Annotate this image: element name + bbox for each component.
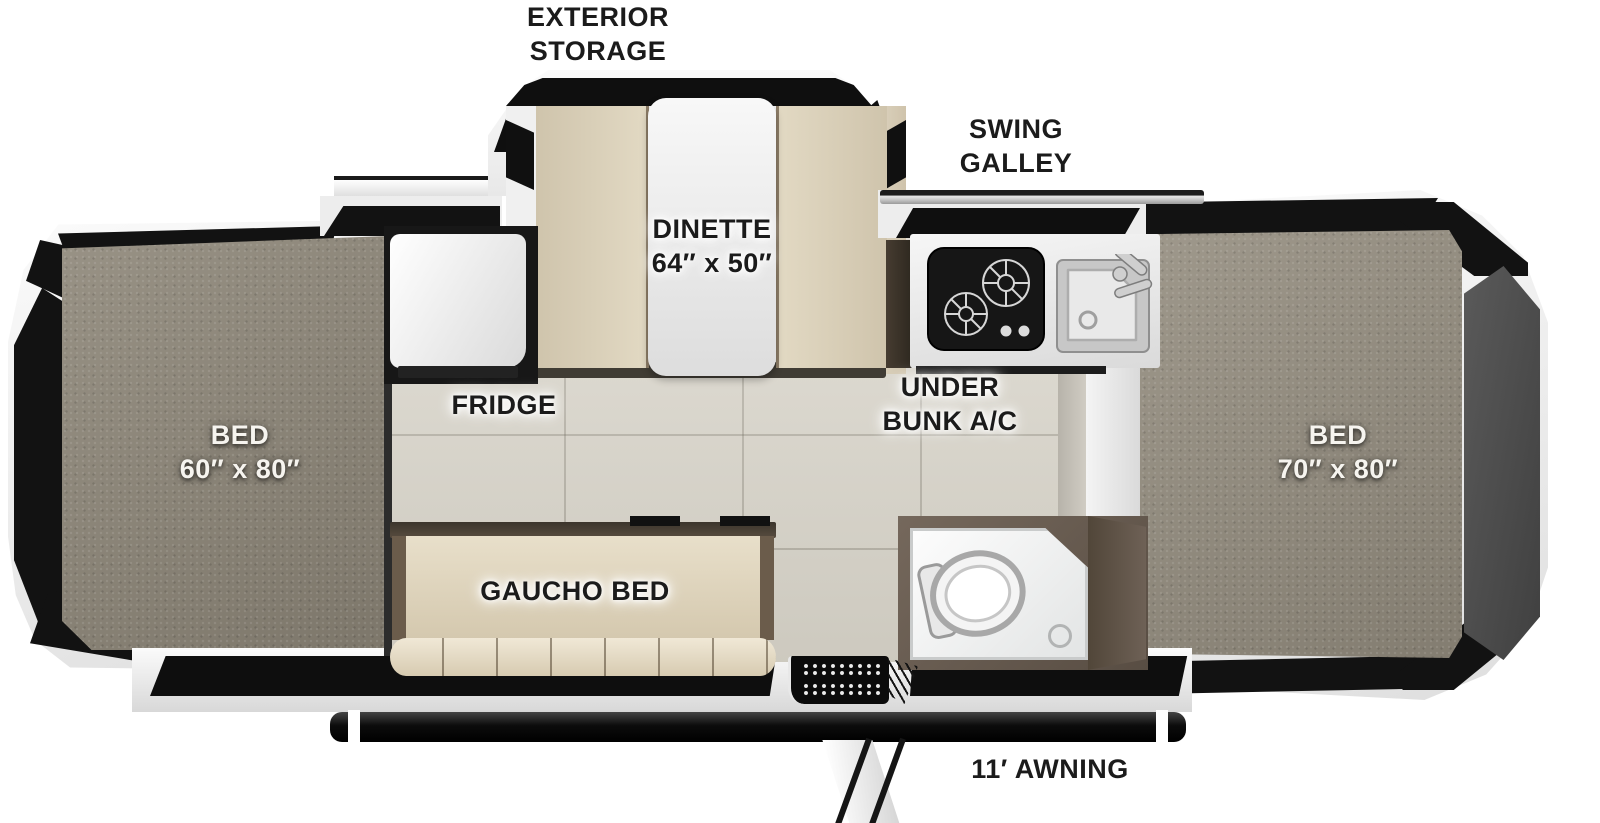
- front-storage-tray: [334, 176, 502, 198]
- bed-right-label: BED 70″ x 80″: [1198, 418, 1478, 486]
- awning-text: 11′ AWNING: [910, 752, 1190, 786]
- bed-right-size: 70″ x 80″: [1198, 452, 1478, 486]
- swing-galley-line1: SWING: [876, 112, 1156, 146]
- gaucho-bed-label: GAUCHO BED: [435, 574, 715, 608]
- entry-step-mat: [788, 656, 889, 704]
- gaucho-bed-text: GAUCHO BED: [435, 574, 715, 608]
- bed-left-size: 60″ x 80″: [100, 452, 380, 486]
- awning-rail-bracket-right: [1156, 710, 1168, 744]
- bath-side-panel: [1088, 516, 1146, 670]
- toilet-icon: [914, 540, 1028, 650]
- entry-mat-dots-row2: [803, 683, 881, 696]
- gaucho-hinge-left: [630, 516, 680, 526]
- under-bunk-ac-line1: UNDER: [810, 370, 1090, 404]
- exterior-storage-line1: EXTERIOR: [458, 0, 738, 34]
- left-bed-accent-left: [14, 288, 68, 624]
- floorplan-canvas: EXTERIOR STORAGE SWING GALLEY DINETTE 64…: [0, 0, 1600, 823]
- awning-rail: [330, 712, 1186, 742]
- awning-rail-bracket-left: [348, 710, 360, 744]
- bed-left-label: BED 60″ x 80″: [100, 418, 380, 486]
- galley-rail: [880, 190, 1204, 204]
- swing-galley-label: SWING GALLEY: [876, 112, 1156, 180]
- dinette-label: DINETTE 64″ x 50″: [572, 212, 852, 280]
- fridge-text: FRIDGE: [364, 388, 644, 422]
- fridge: [390, 234, 526, 368]
- gaucho-front-roll: [390, 638, 776, 676]
- dinette-size: 64″ x 50″: [572, 246, 852, 280]
- fridge-label: FRIDGE: [364, 388, 644, 422]
- gaucho-hinge-right: [720, 516, 770, 526]
- entry-mat-dots-row1: [803, 663, 881, 676]
- bed-left-line1: BED: [100, 418, 380, 452]
- under-bunk-ac-line2: BUNK A/C: [810, 404, 1090, 438]
- exterior-storage-line2: STORAGE: [458, 34, 738, 68]
- exterior-storage-label: EXTERIOR STORAGE: [458, 0, 738, 68]
- swing-galley-line2: GALLEY: [876, 146, 1156, 180]
- under-bunk-ac-label: UNDER BUNK A/C: [810, 370, 1090, 438]
- awning-label: 11′ AWNING: [910, 752, 1190, 786]
- bed-right-line1: BED: [1198, 418, 1478, 452]
- shower-drain: [1048, 624, 1072, 648]
- sink-icon: [1054, 254, 1156, 356]
- cooktop-icon: [926, 246, 1046, 352]
- fridge-base: [398, 366, 518, 378]
- bath-divider-wall-white: [1086, 366, 1140, 518]
- dinette-line1: DINETTE: [572, 212, 852, 246]
- galley-side-cabinet: [886, 240, 912, 368]
